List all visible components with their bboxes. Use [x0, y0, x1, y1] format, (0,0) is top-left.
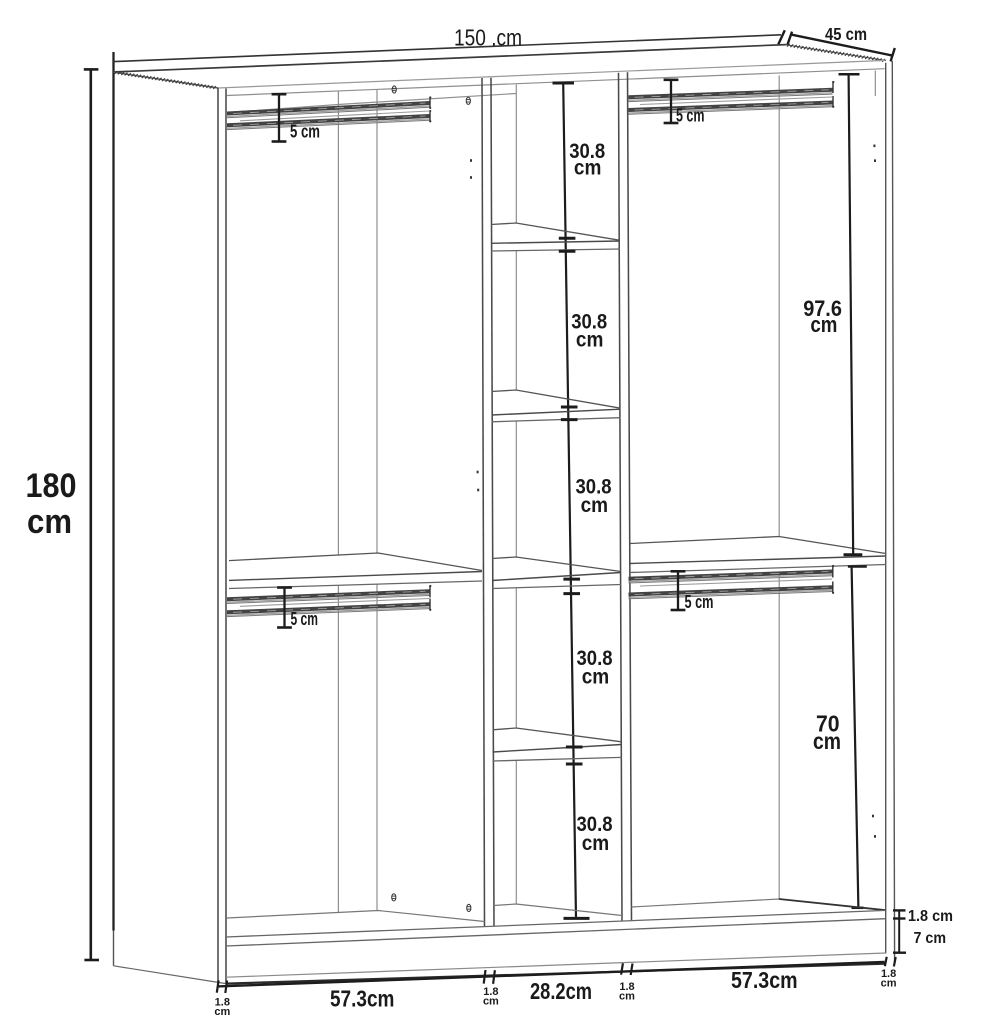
svg-text:150 .cm: 150 .cm	[454, 25, 522, 51]
svg-text:180: 180	[26, 467, 77, 505]
svg-text:cm: cm	[574, 156, 602, 180]
svg-text:cm: cm	[582, 665, 610, 689]
svg-text:cm: cm	[582, 831, 610, 855]
svg-text:45 cm: 45 cm	[825, 24, 867, 44]
svg-text:28.2cm: 28.2cm	[530, 978, 592, 1004]
svg-text:cm: cm	[881, 978, 897, 990]
svg-text:57.3cm: 57.3cm	[731, 967, 798, 993]
svg-text:5 cm: 5 cm	[676, 105, 705, 126]
svg-text:5 cm: 5 cm	[290, 121, 320, 142]
svg-text:cm: cm	[576, 327, 604, 351]
svg-text:1.8 cm: 1.8 cm	[908, 908, 953, 925]
svg-text:57.3cm: 57.3cm	[330, 986, 394, 1012]
svg-text:cm: cm	[27, 503, 72, 541]
svg-text:cm: cm	[810, 312, 837, 337]
svg-text:cm: cm	[214, 1006, 230, 1018]
svg-text:cm: cm	[813, 728, 841, 754]
svg-text:7 cm: 7 cm	[914, 930, 947, 947]
svg-text:5 cm: 5 cm	[291, 608, 319, 629]
svg-text:5 cm: 5 cm	[685, 591, 714, 612]
svg-text:cm: cm	[619, 991, 635, 1003]
svg-text:cm: cm	[581, 493, 609, 517]
svg-text:cm: cm	[483, 995, 499, 1007]
